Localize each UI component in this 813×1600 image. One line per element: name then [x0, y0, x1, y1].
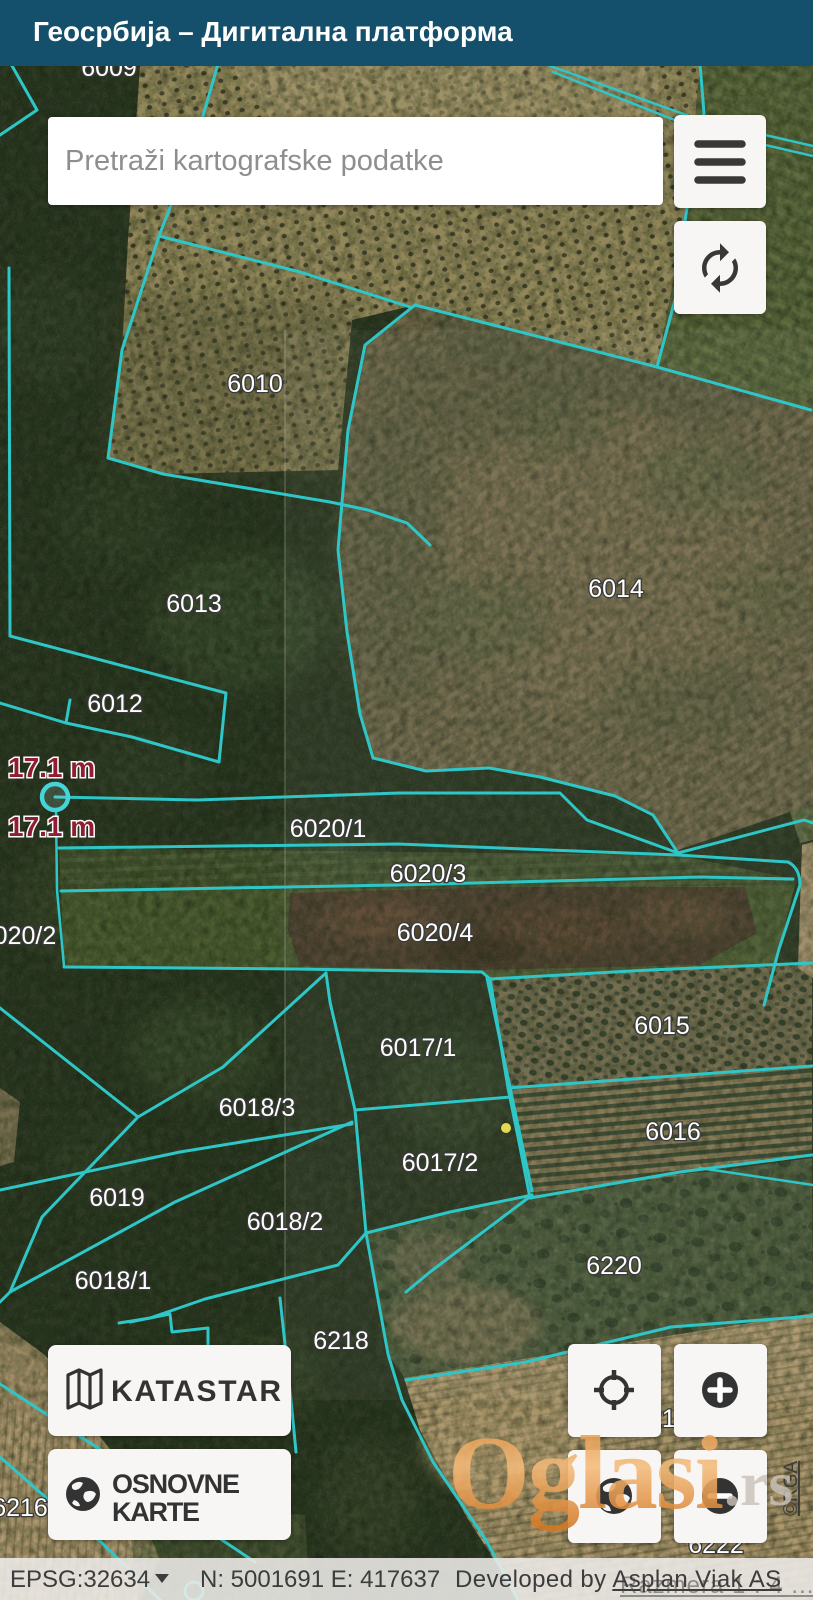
- svg-text:KARTE: KARTE: [112, 1497, 200, 1527]
- svg-text:6020/2: 6020/2: [0, 922, 56, 950]
- svg-text:6216: 6216: [0, 1494, 48, 1522]
- svg-text:Oglasi: Oglasi: [448, 1414, 723, 1531]
- svg-text:6020/3: 6020/3: [390, 860, 466, 888]
- svg-text:6015: 6015: [634, 1012, 690, 1040]
- svg-text:6016: 6016: [645, 1118, 701, 1146]
- svg-text:6020/1: 6020/1: [290, 815, 366, 843]
- svg-text:6012: 6012: [87, 690, 143, 718]
- svg-text:6018/1: 6018/1: [75, 1267, 151, 1295]
- svg-text:KATASTAR: KATASTAR: [111, 1375, 281, 1408]
- svg-text:17.1 m: 17.1 m: [8, 752, 95, 783]
- svg-text:6018/3: 6018/3: [219, 1094, 295, 1122]
- svg-text:6013: 6013: [166, 590, 222, 618]
- svg-text:6020/4: 6020/4: [397, 919, 474, 947]
- svg-text:6017/1: 6017/1: [380, 1034, 456, 1062]
- svg-text:6218: 6218: [313, 1327, 369, 1355]
- svg-text:6017/2: 6017/2: [402, 1149, 478, 1177]
- svg-text:6010: 6010: [227, 370, 283, 398]
- svg-text:6019: 6019: [89, 1184, 145, 1212]
- svg-text:6220: 6220: [586, 1252, 642, 1280]
- svg-text:OSNOVNE: OSNOVNE: [112, 1469, 240, 1499]
- svg-text:17.1 m: 17.1 m: [8, 811, 95, 842]
- svg-text:6014: 6014: [588, 575, 644, 603]
- svg-text:6018/2: 6018/2: [247, 1208, 323, 1236]
- svg-text:.rs: .rs: [724, 1448, 793, 1519]
